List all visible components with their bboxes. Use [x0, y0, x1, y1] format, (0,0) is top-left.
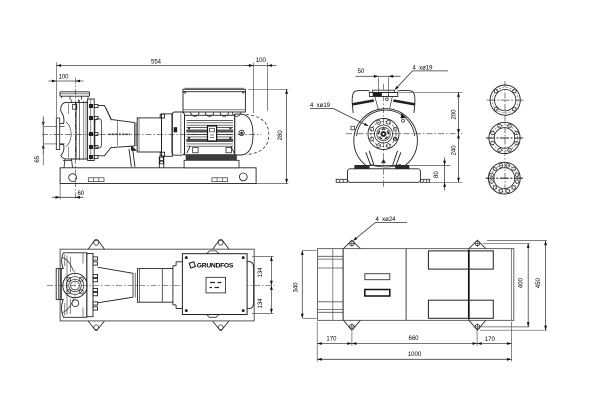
svg-text:60: 60	[77, 191, 84, 197]
svg-text:340: 340	[294, 282, 300, 293]
svg-text:1000: 1000	[408, 352, 422, 358]
svg-text:100: 100	[256, 58, 267, 64]
svg-text:50: 50	[358, 69, 365, 75]
svg-text:170: 170	[326, 337, 337, 343]
svg-text:660: 660	[408, 336, 419, 342]
svg-text:GRUNDFOS: GRUNDFOS	[197, 262, 234, 269]
svg-text:554: 554	[151, 59, 162, 65]
svg-text:100: 100	[58, 74, 69, 80]
svg-text:134: 134	[258, 267, 264, 278]
svg-text:200: 200	[451, 109, 457, 120]
svg-text:65: 65	[35, 155, 41, 162]
svg-text:134: 134	[258, 298, 264, 309]
svg-text:240: 240	[451, 145, 457, 156]
svg-text:80: 80	[434, 171, 440, 178]
svg-text:450: 450	[536, 278, 542, 289]
svg-text:280: 280	[278, 130, 284, 141]
svg-text:4 xø19: 4 xø19	[413, 65, 434, 71]
svg-text:170: 170	[485, 337, 496, 343]
svg-text:400: 400	[519, 278, 525, 289]
